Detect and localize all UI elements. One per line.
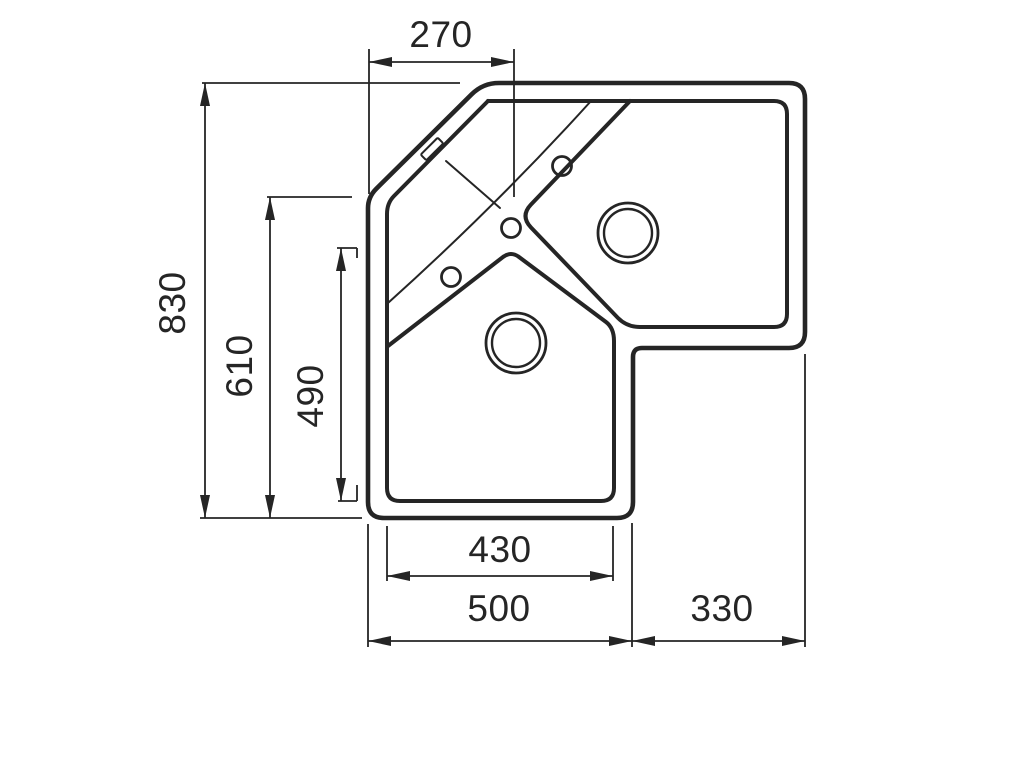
- drainer-groove-line: [388, 101, 591, 303]
- dim-270: 270: [369, 14, 514, 197]
- dim-490-arrow-top: [336, 248, 346, 271]
- dim-490: 490: [290, 248, 357, 501]
- dim-830: 830: [152, 83, 460, 518]
- drainer-groove-arm: [446, 161, 500, 208]
- dim-330-arrow-right: [782, 636, 805, 646]
- dim-270-arrow-right: [491, 57, 514, 67]
- dim-430: 430: [387, 526, 613, 581]
- bottom-bowl-drain-inner: [492, 319, 540, 367]
- accessory-hole-lower: [442, 268, 461, 287]
- dim-830-label: 830: [152, 271, 193, 334]
- right-bowl-outline: [488, 101, 787, 327]
- bottom-bowl-drain-outer: [486, 313, 546, 373]
- bottom-bowl-drain: [486, 313, 546, 373]
- dim-490-label: 490: [290, 364, 331, 427]
- dim-500-label: 500: [467, 588, 530, 629]
- dim-610-arrow-top: [265, 197, 275, 220]
- dim-330-arrow-left: [632, 636, 655, 646]
- dim-500-arrow-left: [368, 636, 391, 646]
- dim-830-arrow-bottom: [200, 495, 210, 518]
- dim-610-label: 610: [219, 334, 260, 397]
- right-bowl-drain-inner: [604, 209, 652, 257]
- dim-610-arrow-bottom: [265, 495, 275, 518]
- dim-270-arrow-left: [369, 57, 392, 67]
- dim-610: 610: [219, 197, 352, 518]
- corner-sink-drawing: 270 830 610 490: [0, 0, 1024, 768]
- dim-270-label: 270: [409, 14, 472, 55]
- dim-430-arrow-right: [590, 571, 613, 581]
- faucet-hole: [502, 219, 521, 238]
- dim-490-arrow-bottom: [336, 478, 346, 501]
- dim-330-label: 330: [690, 588, 753, 629]
- dim-430-arrow-left: [387, 571, 410, 581]
- bottom-bowl-outline: [387, 101, 614, 501]
- dim-500-arrow-right: [609, 636, 632, 646]
- technical-drawing-page: 270 830 610 490: [0, 0, 1024, 768]
- right-bowl-drain-outer: [598, 203, 658, 263]
- sink-body: [368, 83, 805, 518]
- right-bowl-drain: [598, 203, 658, 263]
- dim-430-label: 430: [468, 529, 531, 570]
- dim-330: 330: [632, 354, 805, 647]
- dim-830-arrow-top: [200, 83, 210, 106]
